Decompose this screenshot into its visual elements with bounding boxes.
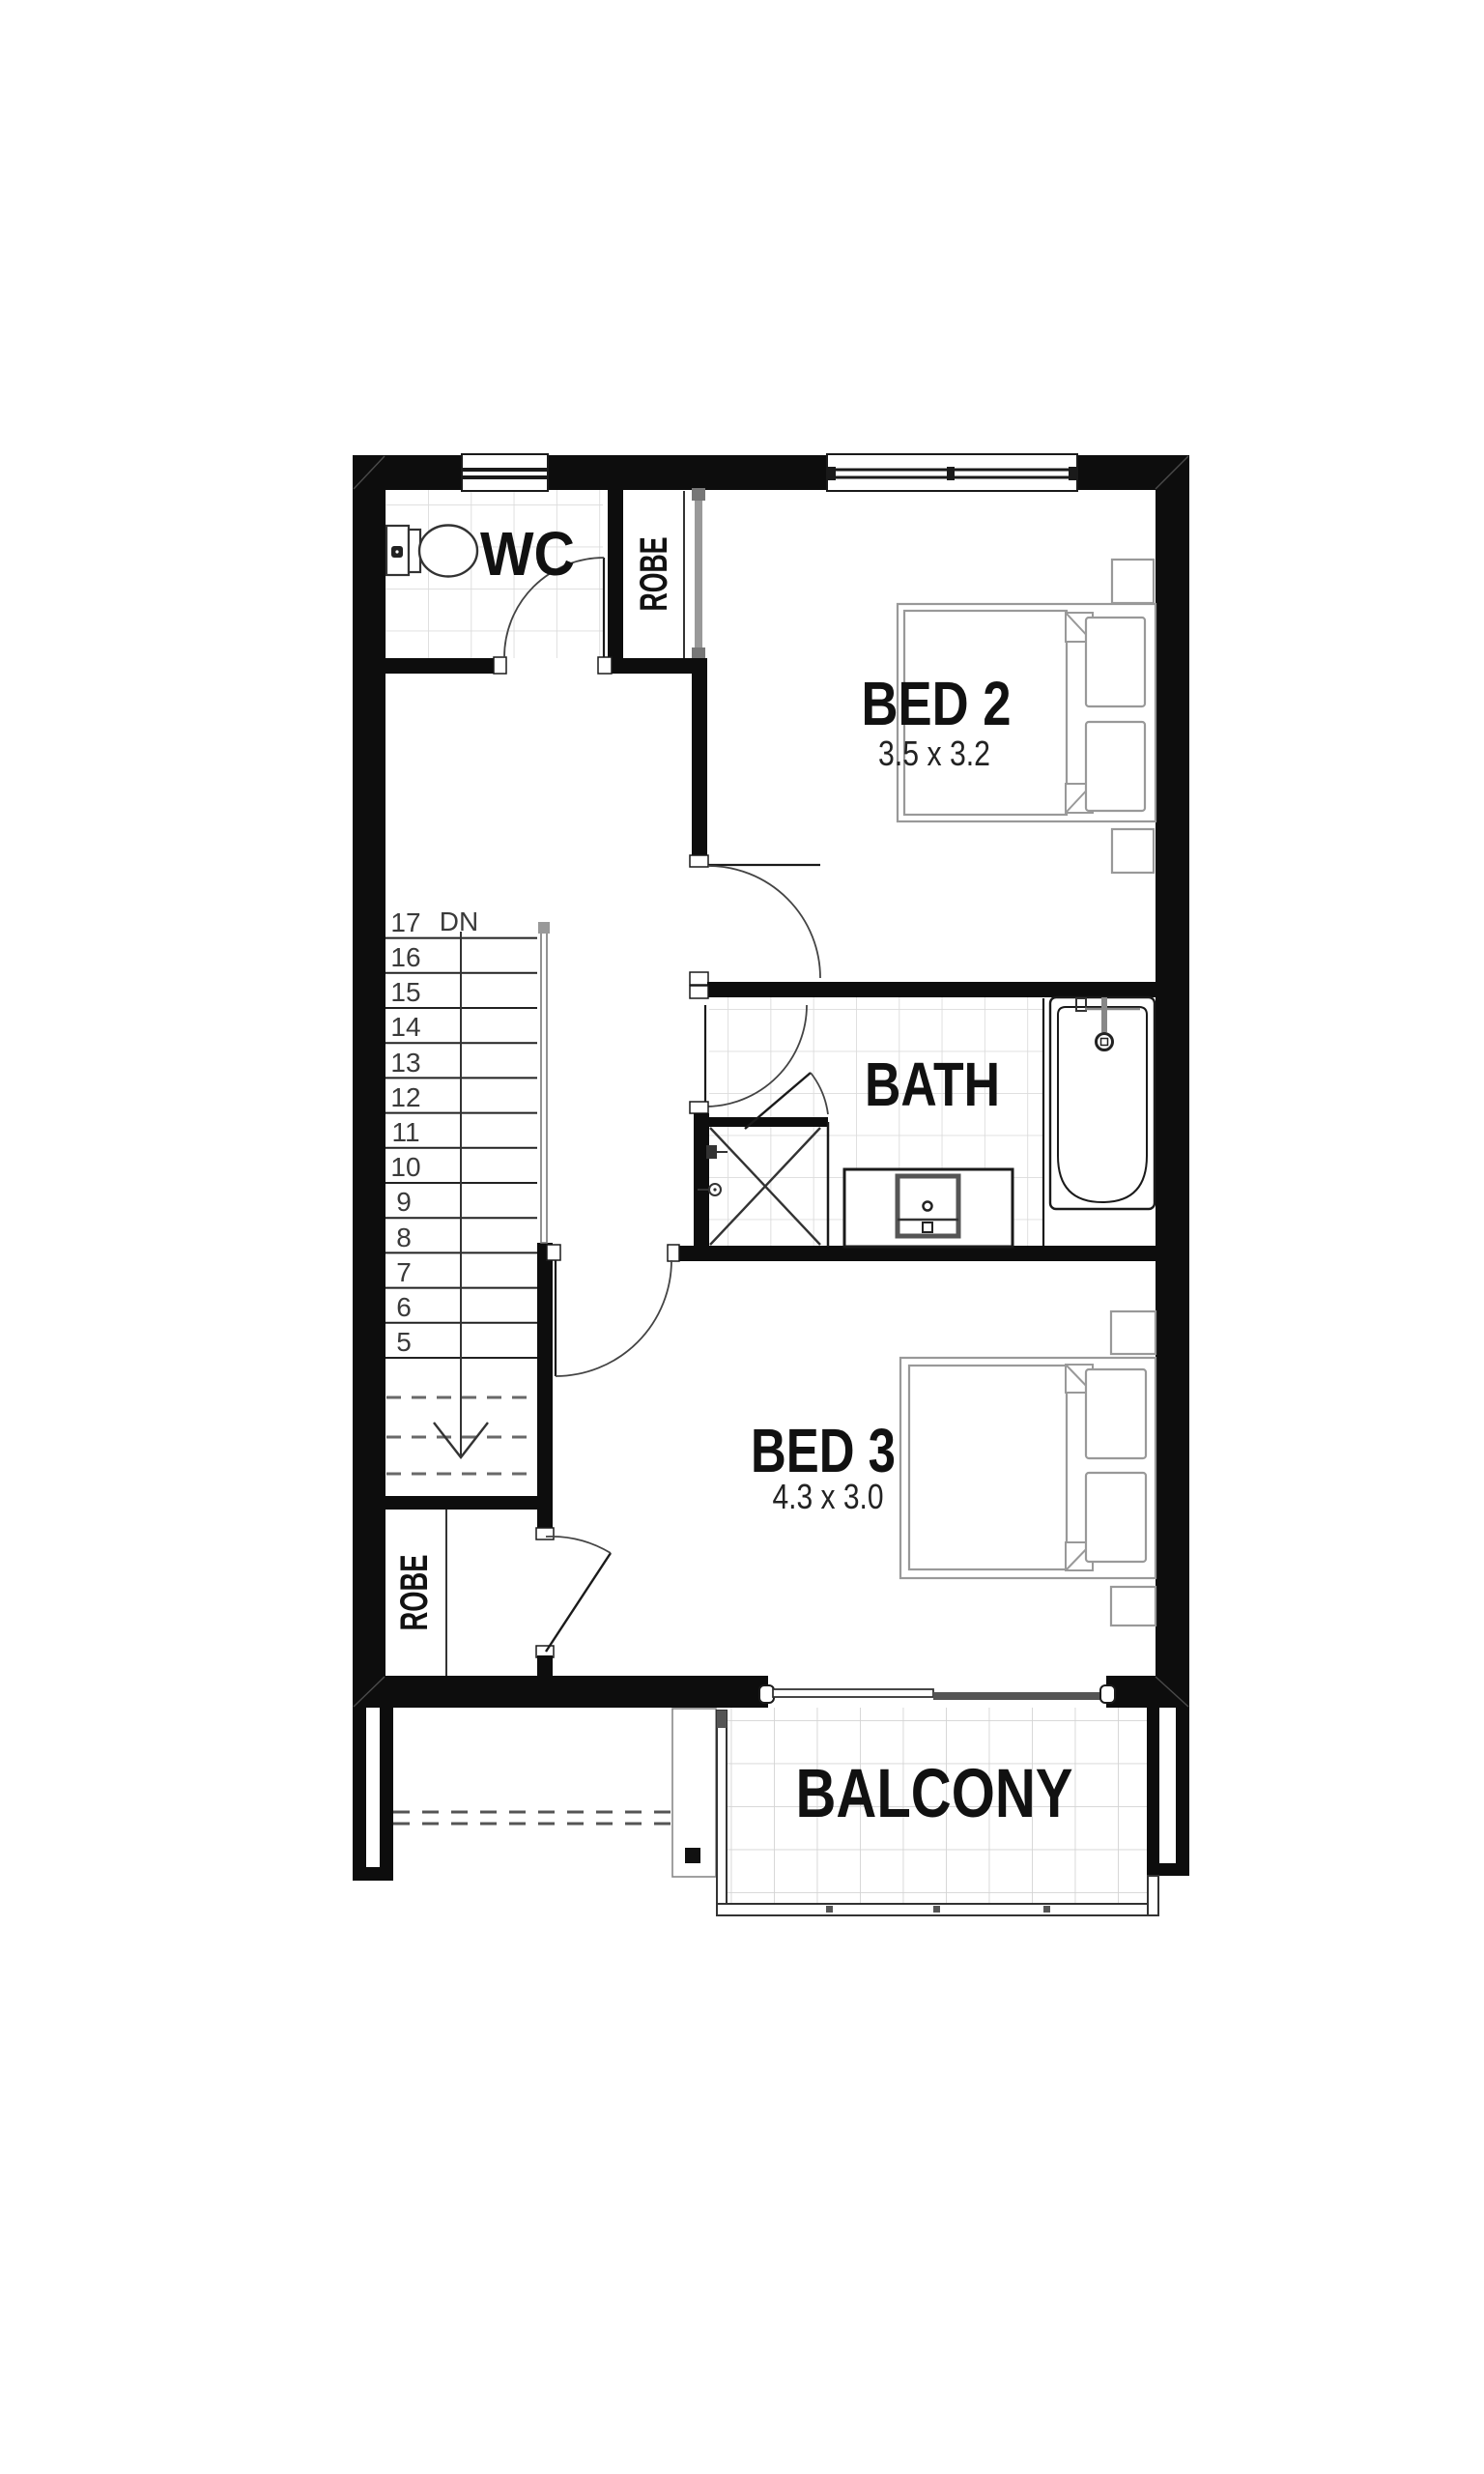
svg-text:14: 14 bbox=[390, 1012, 420, 1042]
svg-text:3.5 x 3.2: 3.5 x 3.2 bbox=[878, 734, 990, 773]
svg-text:13: 13 bbox=[390, 1048, 420, 1078]
svg-text:10: 10 bbox=[390, 1152, 420, 1182]
svg-text:4.3 x 3.0: 4.3 x 3.0 bbox=[773, 1477, 884, 1516]
svg-text:11: 11 bbox=[391, 1117, 419, 1147]
svg-text:BED 2: BED 2 bbox=[862, 669, 1012, 738]
svg-text:9: 9 bbox=[396, 1187, 412, 1217]
svg-text:BED 3: BED 3 bbox=[751, 1416, 896, 1485]
svg-text:DN: DN bbox=[440, 906, 478, 936]
svg-text:5: 5 bbox=[396, 1327, 412, 1357]
svg-text:12: 12 bbox=[390, 1082, 420, 1112]
svg-text:ROBE: ROBE bbox=[633, 537, 675, 612]
svg-text:15: 15 bbox=[390, 977, 420, 1007]
svg-text:6: 6 bbox=[396, 1292, 412, 1322]
svg-text:16: 16 bbox=[390, 942, 420, 972]
svg-text:BALCONY: BALCONY bbox=[796, 1756, 1073, 1832]
svg-text:ROBE: ROBE bbox=[393, 1555, 436, 1631]
svg-text:8: 8 bbox=[396, 1223, 412, 1252]
svg-text:7: 7 bbox=[396, 1257, 412, 1287]
svg-text:WC: WC bbox=[480, 519, 575, 589]
svg-text:BATH: BATH bbox=[865, 1050, 1000, 1119]
svg-text:17: 17 bbox=[390, 907, 420, 937]
